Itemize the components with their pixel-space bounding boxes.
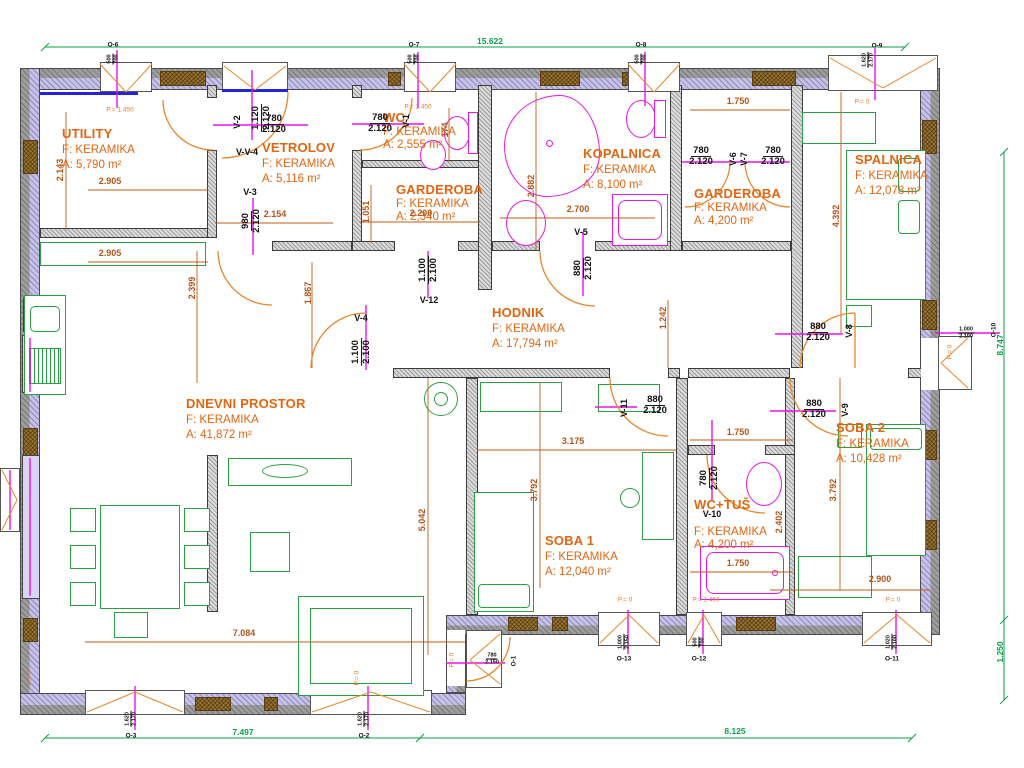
room-floor: F: KERAMIKA (62, 144, 135, 156)
room-area: A: 5,116 m² (262, 173, 335, 185)
window-size-o11: 1.0202.100 (885, 634, 898, 650)
sill-height-8: P.= 0 (354, 671, 361, 686)
door-size-v8: 8802.120 (806, 322, 830, 344)
sill-height-4: P.= 0 (947, 345, 954, 360)
door-size-v10: 7802.120 (699, 466, 721, 490)
dimension-green-2: 8.125 (724, 726, 745, 736)
room-area: A: 41,872 m² (186, 429, 306, 441)
dimension-orange-13: 1.242 (658, 307, 668, 330)
window-tag-o10: O-10 (991, 323, 998, 337)
room-area: A: 8,100 m² (583, 179, 661, 191)
window-tag-o3: O-3 (126, 733, 137, 740)
room-area: A: 10,428 m² (836, 453, 909, 465)
room-floor: F: KERAMIKA (186, 414, 306, 426)
window-tag-o12: O-12 (692, 656, 706, 663)
door-size-v7: 7802.120 (761, 146, 785, 168)
door-size-v12: 1.1002.100 (418, 256, 440, 284)
room-name: SPALNICA (855, 152, 928, 167)
sill-height-1: P.= 1.450 (404, 104, 431, 111)
door-tag-v6: V-6 (728, 152, 738, 166)
dimension-orange-18: 7.084 (233, 628, 256, 638)
dimension-green-1: 7.497 (232, 727, 253, 737)
dimension-orange-5: 2.154 (264, 209, 287, 219)
dimension-orange-20: 2.402 (774, 511, 784, 534)
room-name: KOPALNICA (583, 146, 661, 161)
room-label-utility: UTILITY F: KERAMIKA A: 5,790 m² (62, 126, 135, 171)
door-size-v9: 8802.120 (802, 399, 826, 421)
dimension-orange-10: 2.882 (526, 175, 536, 198)
dimension-orange-3: 2.399 (187, 277, 197, 300)
window-tag-o1: O-1 (511, 656, 518, 667)
room-label-soba1: SOBA 1 F: KERAMIKA A: 12,040 m² (545, 533, 618, 578)
room-area: A: 12,040 m² (545, 566, 618, 578)
room-label-wctus: WC+TUŠ F: KERAMIKA A: 4,200 m² (694, 497, 767, 551)
dimension-orange-2: 2.905 (99, 248, 122, 258)
room-name: GARDEROBA (396, 182, 483, 197)
window-size-o1: 7802.150 (485, 652, 499, 665)
dimension-green-3: 8.747 (995, 334, 1005, 355)
room-area: A: 12,078 m² (855, 185, 928, 197)
dimension-orange-12: 4.392 (831, 205, 841, 228)
window-tag-o2: O-2 (359, 733, 370, 740)
door-size-v4: 1.1002.100 (351, 338, 373, 366)
dimension-orange-16: 3.792 (828, 479, 838, 502)
room-floor: F: KERAMIKA (694, 526, 767, 538)
window-tag-o6: O-6 (108, 42, 119, 49)
dimension-orange-19: 2.900 (869, 574, 892, 584)
dimension-orange-15: 3.792 (529, 479, 539, 502)
sill-height-9: P.= 0 (27, 671, 34, 686)
window-funnel-lines (2, 58, 968, 712)
orange-dimension-lines (66, 92, 930, 655)
sill-height-0: P.= 1.450 (106, 107, 133, 114)
room-floor: F: KERAMIKA (262, 158, 335, 170)
room-name: UTILITY (62, 126, 135, 141)
room-name: DNEVNI PROSTOR (186, 396, 306, 411)
room-area: A: 4,200 m² (694, 539, 767, 551)
window-tag-o8: O-8 (636, 42, 647, 49)
door-tag-vv4: V-V-4 (236, 147, 258, 157)
window-size-o2: 1.6202.170 (357, 711, 370, 727)
window-size-o12: 500700 (692, 636, 705, 647)
room-floor: F: KERAMIKA (583, 164, 661, 176)
dimension-orange-14: 3.175 (562, 436, 585, 446)
room-name: HODNIK (492, 305, 565, 320)
dimension-orange-17: 5.042 (417, 509, 427, 532)
room-label-soba2: SOBA 2 F: KERAMIKA A: 10,428 m² (836, 420, 909, 465)
room-name: GARDEROBA (694, 186, 781, 201)
door-tag-v5: V-5 (574, 227, 588, 237)
dimension-orange-1: 2.905 (99, 176, 122, 186)
room-name: VETROLOV (262, 140, 335, 155)
door-tag-v10: V-10 (703, 509, 722, 519)
floor-plan: UTILITY F: KERAMIKA A: 5,790 m² VETROLOV… (0, 0, 1024, 768)
window-tag-o13: O-13 (617, 656, 631, 663)
door-size-vv4: 1.1202.120 (251, 104, 273, 132)
door-tag-v2: V-2 (232, 115, 242, 129)
window-size-o6: 500700 (106, 53, 119, 64)
room-label-vetrolov: VETROLOV F: KERAMIKA A: 5,116 m² (262, 140, 335, 185)
room-label-kopalnica: KOPALNICA F: KERAMIKA A: 8,100 m² (583, 146, 661, 191)
room-name: SOBA 1 (545, 533, 618, 548)
window-size-o7: 500700 (407, 53, 420, 64)
room-area: A: 2,555 m² (383, 139, 456, 151)
room-area: A: 4,200 m² (694, 215, 781, 227)
door-tag-v4: V-4 (354, 313, 368, 323)
door-tag-v3: V-3 (243, 187, 257, 197)
room-floor: F: KERAMIKA (694, 202, 781, 214)
window-size-o3: 1.6202.170 (124, 711, 137, 727)
green-dimension-lines (41, 43, 1008, 742)
sill-height-3: P.= 0 (855, 99, 870, 106)
dimension-green-4: 1.250 (995, 641, 1005, 662)
dimension-orange-0: 2.143 (55, 159, 65, 182)
window-size-o10: 1.0002.100 (958, 326, 974, 339)
door-tag-v9: V-9 (840, 403, 850, 417)
sill-height-6: P.= 0 (618, 597, 633, 604)
room-label-hodnik: HODNIK F: KERAMIKA A: 17,794 m² (492, 305, 565, 350)
door-size-v5: 8802.120 (573, 256, 595, 280)
door-tag-v7: V-7 (739, 152, 749, 166)
dimension-green-0: 15.622 (477, 36, 503, 46)
room-area: A: 17,794 m² (492, 338, 565, 350)
room-floor: F: KERAMIKA (492, 323, 565, 335)
door-size-v3: 9802.120 (241, 209, 263, 233)
dimension-orange-6: 1.051 (361, 201, 371, 224)
dimension-orange-22: 1.750 (727, 558, 750, 568)
door-window-magenta-lines (10, 48, 1000, 730)
window-size-o8: 500700 (634, 53, 647, 64)
room-area: A: 5,790 m² (62, 159, 135, 171)
room-label-spalnica: SPALNICA F: KERAMIKA A: 12,078 m² (855, 152, 928, 197)
door-tag-v8: V-8 (844, 324, 854, 338)
room-floor: F: KERAMIKA (545, 551, 618, 563)
door-size-v1: 7802.120 (368, 113, 392, 135)
door-size-v11: 8802.120 (643, 395, 667, 417)
dimension-orange-9: 2.700 (567, 204, 590, 214)
window-size-o9: 1.6202.170 (861, 52, 874, 68)
door-tag-v1: V-1 (401, 114, 411, 128)
sill-height-5: P.= 0 (886, 597, 901, 604)
dimension-orange-7: 2.200 (410, 208, 433, 218)
door-size-v6: 7802.120 (689, 146, 713, 168)
floor-plan-linework (0, 0, 1024, 768)
room-label-dnevni-prostor: DNEVNI PROSTOR F: KERAMIKA A: 41,872 m² (186, 396, 306, 441)
window-tag-o11: O-11 (885, 656, 899, 663)
room-label-garderoba2: GARDEROBA F: KERAMIKA A: 4,200 m² (694, 186, 781, 227)
room-name: SOBA 2 (836, 420, 909, 435)
room-floor: F: KERAMIKA (855, 170, 928, 182)
door-tag-v11: V-11 (619, 399, 629, 417)
sill-height-7: P.= 0 (449, 653, 456, 668)
dimension-orange-8: 174 (440, 122, 450, 137)
dimension-orange-11: 1.750 (727, 96, 750, 106)
window-tag-o9: O-9 (872, 43, 883, 50)
door-tag-v12: V-12 (420, 295, 439, 305)
dimension-orange-21: 1.750 (727, 427, 750, 437)
window-size-o13: 1.0002.150 (617, 634, 630, 650)
room-floor: F: KERAMIKA (836, 438, 909, 450)
window-tag-o7: O-7 (409, 42, 420, 49)
sill-height-2: P.= 1.450 (692, 597, 719, 604)
dimension-orange-4: 1.867 (303, 282, 313, 305)
